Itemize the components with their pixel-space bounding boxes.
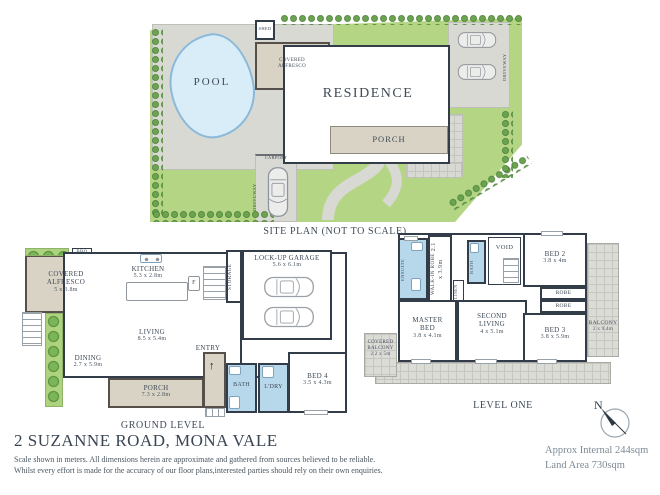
driveway-front-text: DRIVEWAY (252, 183, 257, 211)
gl-kitchen-dims: 5.3 x 2.8m (113, 273, 183, 280)
garage-car-2 (260, 304, 318, 330)
l1-balcony-dims: 2 x 9.4m (587, 327, 619, 333)
ground-level-caption: GROUND LEVEL (103, 420, 223, 431)
driveway-car-1 (453, 30, 501, 50)
gl-bed4-label: BED 4 3.5 x 4.3m (288, 372, 347, 388)
residence-label: RESIDENCE (293, 86, 443, 103)
gl-dining-dims: 2.7 x 5.9m (53, 362, 123, 369)
l1-linen-label: LINEN (454, 283, 459, 300)
gl-dining-text: DINING (53, 354, 123, 362)
l1-robe2-text: ROBE (540, 303, 587, 310)
gl-living-text: LIVING (117, 328, 187, 336)
compass-north-label: N (594, 398, 603, 412)
l1-second-living-text: SECOND LIVING (471, 312, 513, 329)
l1-robe1-text: ROBE (540, 290, 587, 297)
gl-covered-alfresco-text: COVERED ALFRESCO (41, 270, 91, 287)
site-pavers-horizontal (406, 162, 462, 178)
disclaimer-line-1: Scale shown in meters. All dimensions he… (14, 455, 434, 466)
l1-bed2-text: BED 2 (523, 250, 587, 258)
gl-kitchen-text: KITCHEN (113, 265, 183, 273)
gl-bath-basin (229, 366, 241, 375)
page-title: 2 SUZANNE ROAD, MONA VALE (14, 431, 278, 451)
l1-ensuite-window (404, 236, 418, 241)
l1-linen-text: LINEN (453, 284, 458, 299)
l1-bath-basin (470, 243, 479, 253)
l1-second-living-dims: 4 x 5.1m (462, 329, 522, 336)
gl-porch-label: PORCH 7.3 x 2.8m (108, 384, 204, 400)
disclaimer: Scale shown in meters. All dimensions he… (14, 455, 434, 477)
l1-wir-label: WALK-IN ROBE 2.1 x 3.9m (431, 240, 445, 298)
gl-kitchen-label: KITCHEN 5.3 x 2.8m (113, 265, 183, 281)
gl-dining-label: DINING 2.7 x 5.9m (53, 354, 123, 370)
carport-label: CARPORT (255, 155, 297, 160)
residence-label-text: RESIDENCE (293, 86, 443, 103)
site-porch-label: PORCH (330, 134, 448, 144)
gl-laundry-label: L'DRY (258, 384, 289, 391)
l1-ensuite-toilet (411, 278, 421, 291)
site-porch-label-text: PORCH (330, 134, 448, 144)
gl-covered-alfresco-dims: 5 x 3.8m (34, 287, 98, 294)
l1-second-living-label: SECOND LIVING 4 x 5.1m (462, 312, 522, 336)
gl-porch-dims: 7.3 x 2.8m (108, 392, 204, 399)
level-one-caption: LEVEL ONE (443, 400, 563, 411)
shed-label-text: SHED (255, 26, 275, 31)
l1-balcony-text: BALCONY (587, 320, 619, 327)
gl-storage-text: STORAGE (228, 264, 233, 290)
l1-ensuite-label: ENSUITE (400, 250, 405, 290)
gl-covered-alfresco-label: COVERED ALFRESCO 5 x 3.8m (34, 270, 98, 294)
l1-bed3-dims: 3.8 x 5.9m (523, 334, 587, 341)
gl-entry-text: ENTRY (180, 344, 236, 352)
gl-laundry-machine (262, 366, 274, 378)
l1-master-label: MASTER BED 3.8 x 4.1m (403, 316, 452, 340)
entry-arrow-icon: ↑ (209, 360, 215, 372)
level-one-plan: ENSUITE WALK-IN ROBE 2.1 x 3.9m BATH LIN… (363, 228, 623, 390)
site-covered-alfresco-label: COVERED ALFRESCO (262, 58, 322, 70)
l1-covered-balcony-text: COVERED BALCONY (366, 340, 396, 352)
l1-robe2-label: ROBE (540, 303, 587, 310)
driveway-front-label: DRIVEWAY (252, 174, 257, 220)
l1-ensuite-basin (411, 242, 423, 251)
bush-column-left (151, 28, 163, 216)
l1-void-stairs (503, 258, 519, 283)
garage-car-1 (260, 274, 318, 300)
pool-label-text: POOL (172, 76, 252, 89)
l1-ensuite-text: ENSUITE (400, 259, 405, 281)
gl-fridge-text: F (188, 280, 200, 287)
hedge-top (280, 14, 522, 25)
gl-bath-shower (229, 396, 240, 409)
gl-laundry-text: L'DRY (258, 384, 289, 391)
l1-bath-text: BATH (469, 260, 474, 274)
l1-covered-balcony-label: COVERED BALCONY 2.2 x 5m (364, 340, 397, 358)
disclaimer-line-2: Whilst every effort is made for the accu… (14, 466, 434, 477)
gl-bed4-window (304, 410, 328, 415)
l1-roof-strip (375, 362, 611, 384)
pool-label: POOL (172, 76, 252, 89)
l1-bed2-dims: 3.8 x 4m (523, 258, 587, 265)
driveway-side-label: DRIVEWAY (502, 42, 507, 92)
site-covered-alfresco-text: COVERED ALFRESCO (272, 58, 312, 70)
l1-bath-label: BATH (469, 254, 474, 280)
gl-bed4-dims: 3.5 x 4.3m (288, 380, 347, 387)
stove-icon (140, 254, 162, 263)
gl-garage-label: LOCK-UP GARAGE 5.6 x 6.1m (247, 254, 327, 270)
gl-bbq-text: BBQ (72, 250, 92, 256)
l1-bed3-window (537, 359, 557, 364)
driveway-side-text: DRIVEWAY (502, 53, 507, 81)
l1-master-window (411, 359, 431, 364)
driveway-car-2 (453, 62, 501, 82)
gl-entry-label: ENTRY (180, 344, 236, 352)
bush-column-right (501, 110, 513, 178)
gl-bed4-text: BED 4 (288, 372, 347, 380)
l1-wir-text: WALK-IN ROBE (431, 253, 436, 295)
gl-bath-text: BATH (226, 382, 257, 389)
gl-porch-text: PORCH (108, 384, 204, 392)
gl-living-dims: 8.5 x 5.4m (117, 336, 187, 343)
shed-label: SHED (255, 26, 275, 31)
l1-second-living-window (475, 359, 497, 364)
carport-label-text: CARPORT (255, 155, 297, 160)
gl-garage-text: LOCK-UP GARAGE (247, 254, 327, 262)
gl-garage-dims: 5.6 x 6.1m (247, 262, 327, 269)
land-area-text: Land Area 730sqm (545, 458, 657, 473)
gl-stairs-left (22, 312, 42, 346)
l1-robe1-label: ROBE (540, 290, 587, 297)
l1-void-label: VOID (488, 244, 521, 252)
l1-master-dims: 3.8 x 4.1m (403, 333, 452, 340)
gl-storage-label: STORAGE (228, 256, 234, 298)
ground-level-plan: COVERED ALFRESCO 5 x 3.8m BBQ KITCHEN 5.… (22, 246, 357, 418)
l1-balcony-label: BALCONY 2 x 9.4m (587, 320, 619, 333)
l1-bed3-label: BED 3 3.8 x 5.9m (523, 326, 587, 342)
gl-living-label: LIVING 8.5 x 5.4m (117, 328, 187, 344)
floorplan-page: POOL SHED COVERED ALFRESCO RESIDENCE POR… (0, 0, 660, 495)
l1-master-text: MASTER BED (408, 316, 448, 333)
gl-stairs-mid (203, 266, 226, 300)
kitchen-island (126, 282, 188, 301)
l1-void-text: VOID (488, 244, 521, 252)
gl-entry-landing (203, 352, 226, 408)
l1-covered-balcony-dims: 2.2 x 5m (364, 352, 397, 358)
gl-bath-label: BATH (226, 382, 257, 389)
l1-bed3-text: BED 3 (523, 326, 587, 334)
compass-icon: N (590, 396, 636, 442)
l1-balcony (587, 243, 619, 357)
approx-internal-text: Approx Internal 244sqm (545, 443, 657, 458)
gl-entry-steps (205, 408, 225, 417)
gl-bbq-label: BBQ (72, 250, 92, 256)
area-summary: Approx Internal 244sqm Land Area 730sqm (545, 443, 657, 473)
carport-car (265, 165, 291, 219)
l1-bed2-window (541, 231, 563, 236)
gl-fridge-label: F (188, 280, 200, 287)
l1-bed2-label: BED 2 3.8 x 4m (523, 250, 587, 266)
site-plan: POOL SHED COVERED ALFRESCO RESIDENCE POR… (150, 14, 522, 224)
